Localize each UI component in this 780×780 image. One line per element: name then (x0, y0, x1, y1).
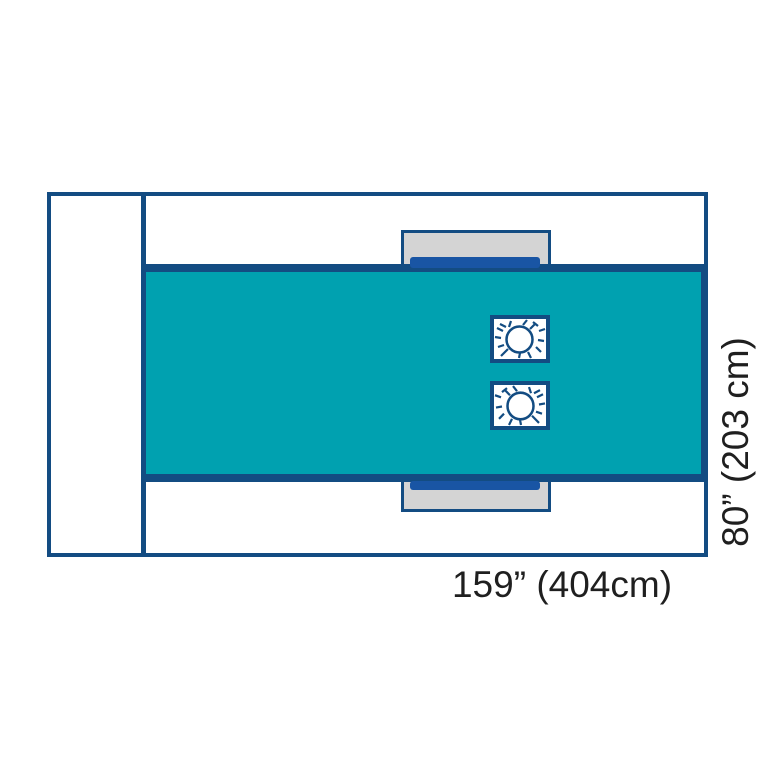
top-tab-strap (410, 257, 540, 268)
fenestration-upper (490, 315, 550, 363)
height-dimension-label: 80” (203 cm) (714, 282, 758, 602)
incise-pattern-icon (494, 385, 546, 426)
bottom-tab-strap (410, 481, 540, 490)
fenestration-lower (490, 381, 550, 430)
width-dimension-label: 159” (404cm) (412, 564, 712, 606)
drape-diagram: 159” (404cm) 80” (203 cm) (0, 0, 780, 780)
drape-center-panel (141, 264, 708, 482)
incise-pattern-icon (494, 319, 546, 359)
